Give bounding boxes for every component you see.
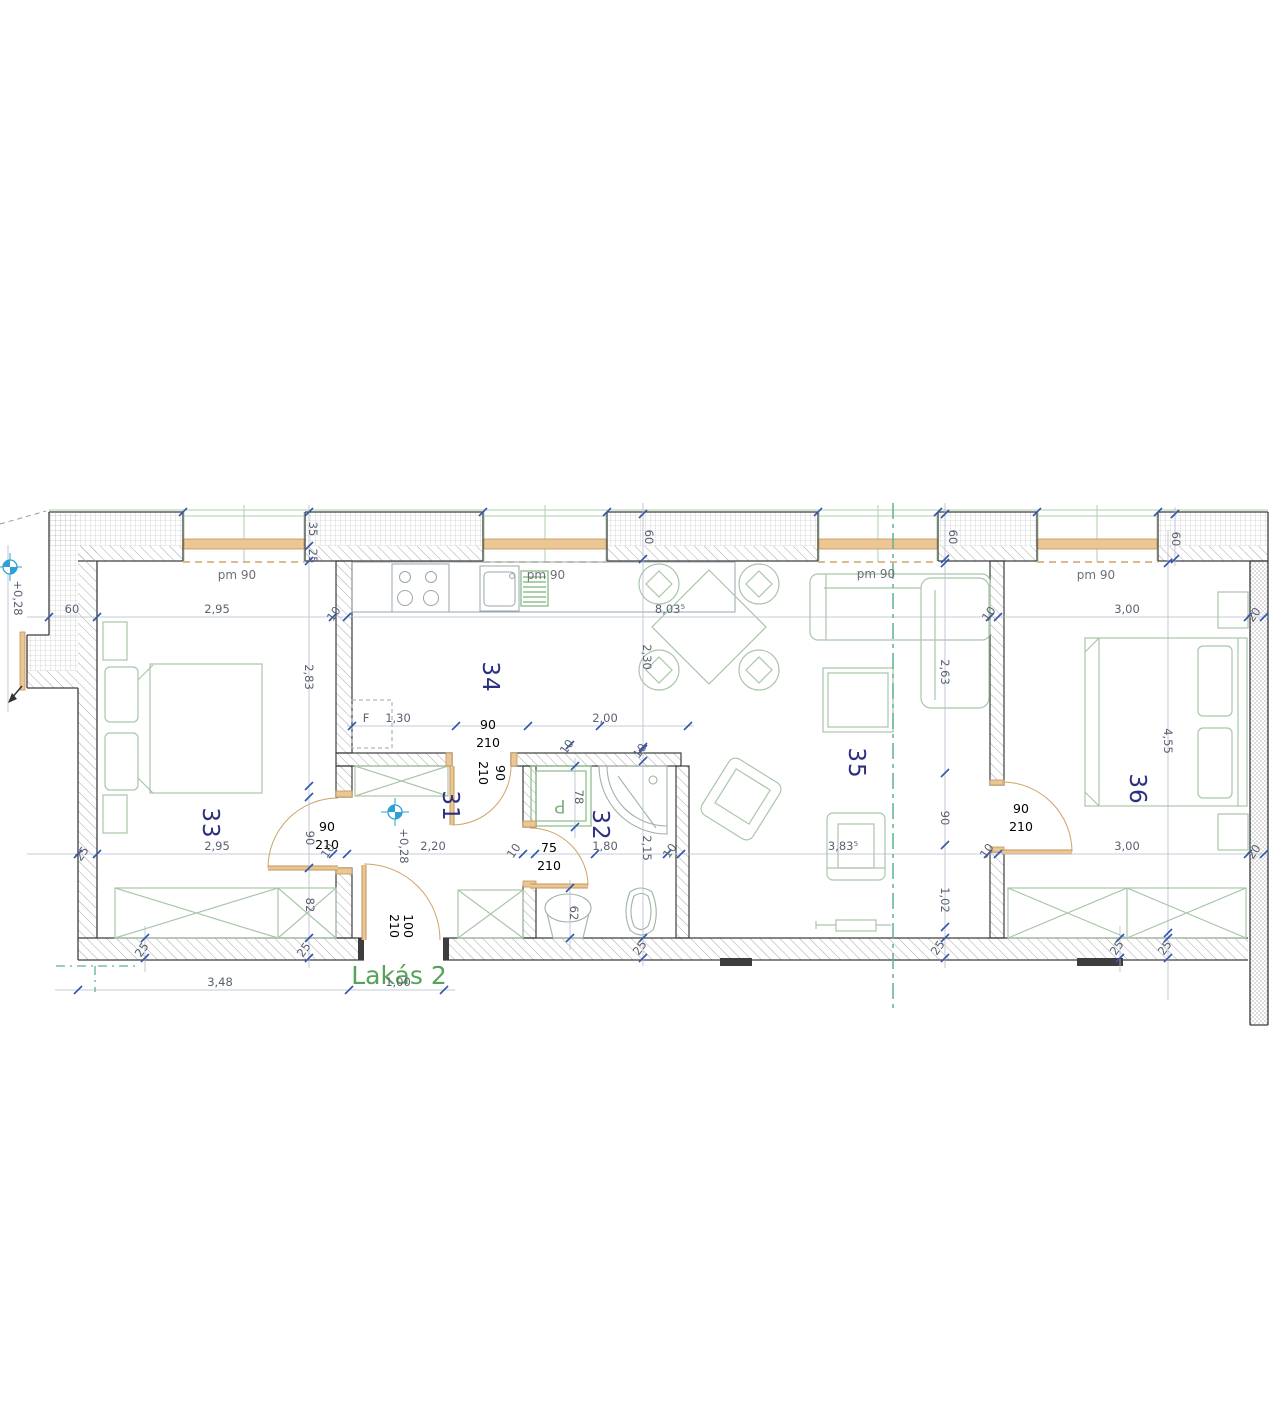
rooms-label-5: 36 <box>1124 773 1150 804</box>
dimensions-label-25: 2,83 <box>302 664 316 690</box>
door_sizes-label-4: 90 <box>1013 801 1029 816</box>
dimensions-label-26: 2,30 <box>640 644 654 670</box>
door_sizes-label-0: 90 <box>319 819 335 834</box>
dimensions-label-35: 62 <box>567 906 581 921</box>
windows-label-1: pm 90 <box>527 568 565 582</box>
dimensions-label-29: 90 <box>938 811 952 826</box>
fixtures-label-0: P <box>554 795 565 817</box>
floor-plan-canvas: Lakás 2333431323536pm 90pm 90pm 90pm 909… <box>0 0 1280 1426</box>
dimensions-label-38: 60 <box>642 530 656 545</box>
dimensions-label-33: 82 <box>303 898 317 913</box>
dimensions-label-28: 2,63 <box>938 659 952 685</box>
door_sizes-label-5: 210 <box>1009 819 1033 834</box>
door_sizes-label-2: 75 <box>541 840 557 855</box>
dimensions-label-1: 2,95 <box>204 602 230 616</box>
dimensions-label-12: 1,80 <box>592 839 618 853</box>
dimensions-label-24: 1,00 <box>385 975 411 989</box>
rooms-label-1: 34 <box>477 661 503 692</box>
door_sizes-label-7: 210 <box>476 735 500 750</box>
door_sizes-label-8: 210 <box>476 761 491 785</box>
rooms-label-4: 35 <box>843 747 869 778</box>
rooms-label-0: 33 <box>197 807 223 838</box>
dimensions-label-27: 2,15 <box>640 835 654 861</box>
dimensions-label-18: F <box>363 711 370 725</box>
dimensions-label-8: 2,95 <box>204 839 230 853</box>
dimensions-label-10: 2,20 <box>420 839 446 853</box>
windows-label-0: pm 90 <box>218 568 256 582</box>
dimensions-label-5: 3,00 <box>1114 602 1140 616</box>
dimensions-label-40: 60 <box>1169 532 1183 547</box>
dimensions-label-31: 4,55 <box>1161 728 1175 754</box>
levels-label-1: +0,28 <box>397 828 411 863</box>
door_sizes-label-9: 90 <box>493 765 508 781</box>
dimensions-label-32: 90 <box>303 831 317 846</box>
door_sizes-label-10: 210 <box>387 914 402 938</box>
levels-label-0: +0,28 <box>11 580 25 615</box>
dimensions-label-34: 78 <box>572 790 586 805</box>
neighbor-door-leaf <box>20 632 25 690</box>
dimensions-label-16: 3,00 <box>1114 839 1140 853</box>
dimensions-label-39: 60 <box>946 530 960 545</box>
dimensions-label-14: 3,83⁵ <box>828 839 859 853</box>
dimensions-label-30: 1,02 <box>938 887 952 913</box>
wall-stub <box>720 958 752 966</box>
door_sizes-label-11: 100 <box>401 914 416 938</box>
dimensions-label-36: 35 <box>306 522 320 537</box>
door_sizes-label-6: 90 <box>480 717 496 732</box>
dimensions-label-0: 60 <box>65 602 80 616</box>
dimensions-label-37: 25 <box>306 549 320 564</box>
dimensions-label-23: 3,48 <box>207 975 233 989</box>
dimensions-label-3: 8,03⁵ <box>655 602 686 616</box>
windows-label-2: pm 90 <box>857 567 895 581</box>
rooms-label-2: 31 <box>437 790 463 821</box>
dimensions-label-19: 1,30 <box>385 711 411 725</box>
paper-background <box>0 0 1280 1426</box>
floor-plan-page: Lakás 2333431323536pm 90pm 90pm 90pm 909… <box>0 0 1280 1426</box>
dimensions-label-20: 2,00 <box>592 711 618 725</box>
windows-label-3: pm 90 <box>1077 568 1115 582</box>
door_sizes-label-3: 210 <box>537 858 561 873</box>
rooms-label-3: 32 <box>587 809 613 840</box>
